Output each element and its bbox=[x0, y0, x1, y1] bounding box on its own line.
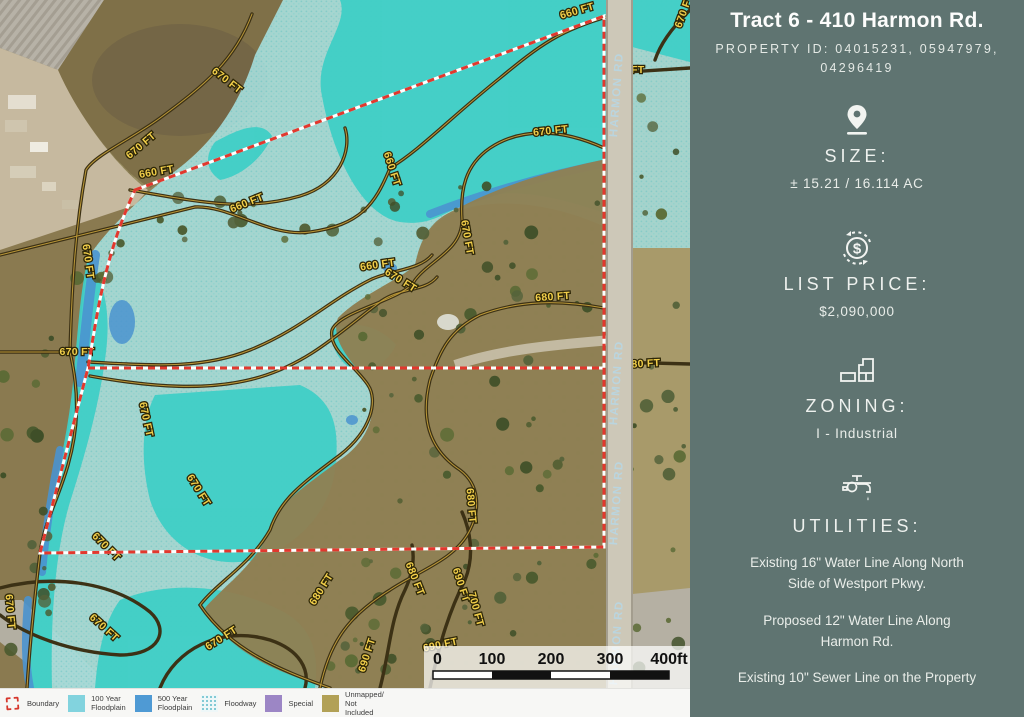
utility-line-3: Existing 10" Sewer Line on the Property bbox=[704, 668, 1010, 689]
size-label: SIZE: bbox=[704, 146, 1010, 167]
legend-swatch bbox=[135, 695, 152, 712]
property-id: PROPERTY ID: 04015231, 05947979, 0429641… bbox=[704, 40, 1010, 79]
legend-item: 500 Year Floodplain bbox=[135, 694, 193, 712]
svg-text:680 FT: 680 FT bbox=[535, 290, 571, 304]
legend-label: Boundary bbox=[27, 699, 59, 708]
svg-text:$: $ bbox=[853, 240, 862, 257]
zoning-label: ZONING: bbox=[704, 396, 1010, 417]
scale-bar: 0100200300400ft bbox=[424, 646, 690, 688]
svg-text:0: 0 bbox=[433, 651, 442, 668]
legend-item: Boundary bbox=[4, 697, 59, 710]
size-value: ± 15.21 / 16.114 AC bbox=[704, 176, 1010, 191]
price-value: $2,090,000 bbox=[704, 304, 1010, 319]
aerial-flood-map: 660 FT670 FT660 FT670 FT670 FT670 FT660 … bbox=[0, 0, 690, 688]
legend-label: Unmapped/ Not Included bbox=[345, 690, 397, 717]
svg-text:200: 200 bbox=[538, 651, 565, 668]
legend-item: Unmapped/ Not Included bbox=[322, 690, 397, 717]
svg-text:100: 100 bbox=[479, 651, 506, 668]
svg-text:300: 300 bbox=[597, 651, 624, 668]
price-refresh-icon: $ bbox=[704, 231, 1010, 265]
page-title: Tract 6 - 410 Harmon Rd. bbox=[704, 9, 1010, 33]
legend-label: Special bbox=[288, 699, 313, 708]
boundary-dashed-icon bbox=[6, 696, 20, 710]
utility-line-1: Existing 16" Water Line Along North Side… bbox=[704, 553, 1010, 595]
legend-swatch bbox=[201, 695, 218, 712]
legend-label: 500 Year Floodplain bbox=[158, 694, 193, 712]
legend-item: 100 Year Floodplain bbox=[68, 694, 126, 712]
legend-item: Special bbox=[265, 695, 313, 712]
map-legend: Boundary100 Year Floodplain500 Year Floo… bbox=[0, 688, 690, 717]
legend-label: Floodway bbox=[224, 699, 256, 708]
property-flyer: 660 FT670 FT660 FT670 FT670 FT670 FT660 … bbox=[0, 0, 1024, 717]
zoning-blocks-icon bbox=[704, 353, 1010, 387]
utilities-label: UTILITIES: bbox=[704, 516, 1010, 537]
legend-swatch bbox=[68, 695, 85, 712]
location-pin-icon bbox=[704, 103, 1010, 137]
legend-swatch bbox=[265, 695, 282, 712]
legend-item: Floodway bbox=[201, 695, 256, 712]
price-label: LIST PRICE: bbox=[704, 274, 1010, 295]
property-info-sidebar: Tract 6 - 410 Harmon Rd. PROPERTY ID: 04… bbox=[690, 0, 1024, 717]
utilities-faucet-icon bbox=[704, 473, 1010, 507]
legend-label: 100 Year Floodplain bbox=[91, 694, 126, 712]
svg-text:400ft: 400ft bbox=[650, 651, 688, 668]
utility-line-2: Proposed 12" Water Line Along Harmon Rd. bbox=[704, 611, 1010, 653]
legend-swatch bbox=[322, 695, 339, 712]
zoning-value: I - Industrial bbox=[704, 426, 1010, 441]
map-panel: 660 FT670 FT660 FT670 FT670 FT670 FT660 … bbox=[0, 0, 690, 717]
